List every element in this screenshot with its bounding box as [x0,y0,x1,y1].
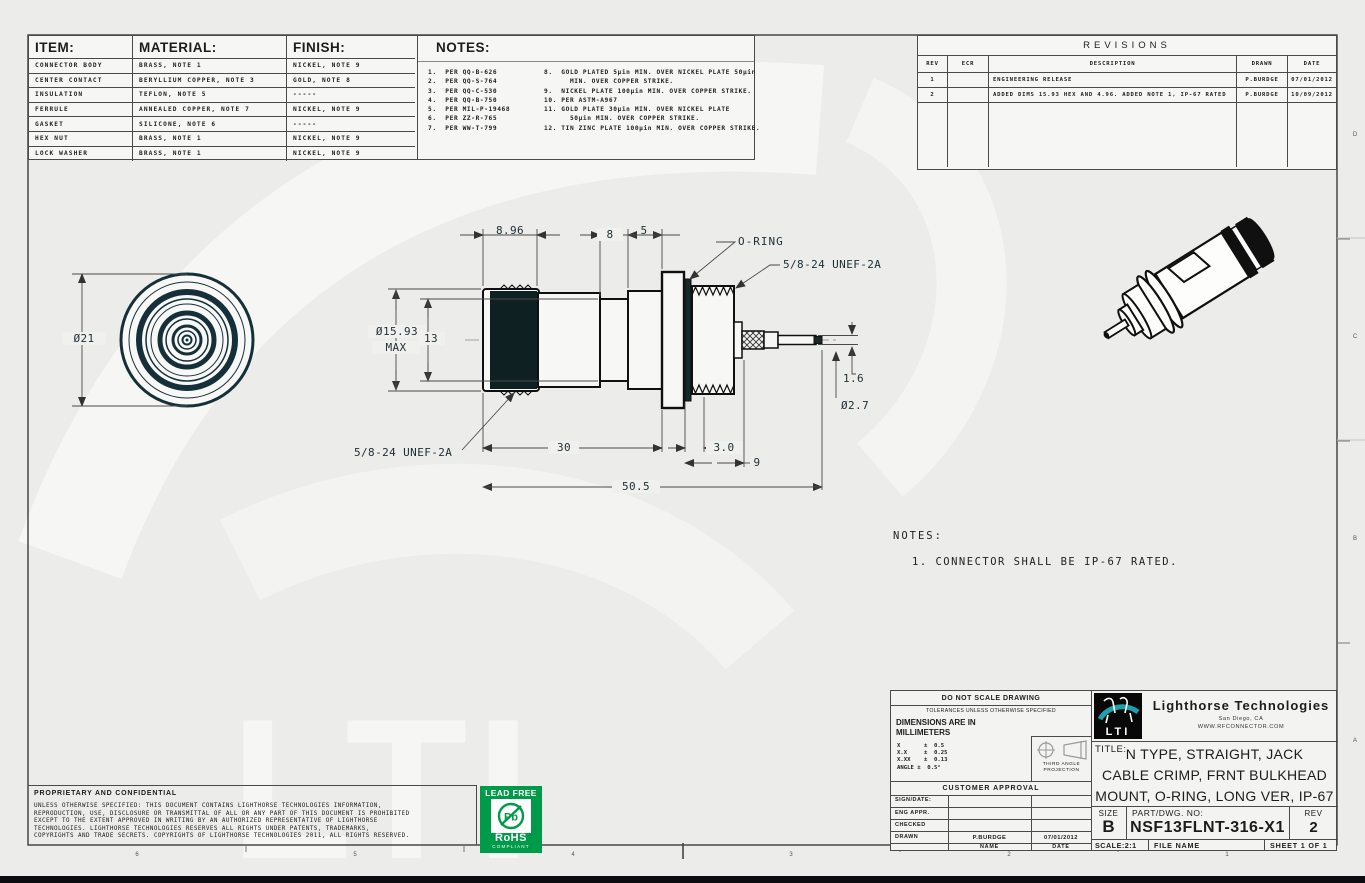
rohs-badge: LEAD FREE Pb RoHS COMPLIANT [480,786,542,853]
revision-cell: P.BURDGE [1237,73,1288,88]
materials-cell: FERRULE [29,103,133,118]
rohs-compliant-label: COMPLIANT [480,844,542,850]
revisions-header: DESCRIPTION [989,56,1237,73]
revision-cell: 07/01/2012 [1288,73,1336,88]
file-name-label: FILE NAME [1154,841,1200,850]
dim-diameter-max-suffix: MAX [372,341,420,354]
zone-number: 5 [345,852,365,858]
proprietary-body: UNLESS OTHERWISE SPECIFIED: THIS DOCUMEN… [34,803,410,841]
materials-cell: CENTER CONTACT [29,74,133,89]
name-column-label: NAME [948,843,1031,851]
materials-cell: GOLD, NOTE 8 [287,74,415,89]
top-notes-title: NOTES: [436,40,490,55]
top-notes-left-column: 1. PER QQ-B-626 2. PER QQ-S-764 3. PER Q… [428,68,510,133]
revisions-header: DATE [1288,56,1336,73]
drawing-title-line-3: MOUNT, O-RING, LONG VER, IP-67 [1091,786,1338,806]
do-not-scale-label: DO NOT SCALE DRAWING [891,691,1091,705]
dim-3-0: 3.0 [706,441,742,454]
materials-header-item: ITEM: [29,36,133,59]
revision-cell: ENGINEERING RELEASE [989,73,1237,88]
sheet-number-label: SHEET 1 OF 1 [1270,841,1328,850]
eng-appr-label: ENG APPR. [895,810,930,816]
materials-cell: ANNEALED COPPER, NOTE 7 [133,103,287,118]
zone-number: 6 [127,852,147,858]
revisions-filler [989,103,1237,167]
materials-header-finish: FINISH: [287,36,415,59]
materials-cell: CONNECTOR BODY [29,59,133,74]
materials-cell: BRASS, NOTE 1 [133,59,287,74]
label-o-ring: O-RING [738,235,784,248]
dim-8: 8 [597,228,623,241]
zone-letter: B [1348,536,1362,542]
drawing-title-line-1: N TYPE, STRAIGHT, JACK [1091,744,1338,764]
company-logo: LTI [1094,693,1142,739]
materials-header-material: MATERIAL: [133,36,287,59]
revisions-title: REVISIONS [918,36,1336,56]
dim-front-diameter: Ø21 [62,332,106,345]
company-website: WWW.RFCONNECTOR.COM [1146,723,1336,731]
drawing-sheet: LTI [0,0,1365,883]
dimensions-note: DIMENSIONS ARE IN MILLIMETERS [896,718,1031,738]
dim-1-6: 1.6 [843,372,864,385]
revisions-header: DRAWN [1237,56,1288,73]
zone-letter: A [1348,738,1362,744]
third-angle-cell: THIRD ANGLE PROJECTION [1032,737,1091,781]
main-notes-item-1: 1. CONNECTOR SHALL BE IP-67 RATED. [912,556,1178,568]
top-notes-divider [418,61,754,62]
tolerance-values: X ± 0.5 X.X ± 0.25 X.XX ± 0.13 ANGLE ± 0… [897,743,1027,772]
revision-cell: 2 [918,88,948,103]
company-location: San Diego, CA [1146,715,1336,723]
rev-value: 2 [1289,816,1338,838]
materials-cell: NICKEL, NOTE 9 [287,59,415,74]
zone-letter: C [1348,334,1362,340]
pb-icon: Pb [491,799,531,833]
materials-cell: HEX NUT [29,132,133,147]
top-notes-panel: NOTES: 1. PER QQ-B-626 2. PER QQ-S-764 3… [417,35,755,160]
materials-cell: ----- [287,88,415,103]
materials-cell: NICKEL, NOTE 9 [287,103,415,118]
sign-date-label: SIGN/DATE: [895,797,931,803]
dim-5: 5 [632,224,656,237]
zone-number: 2 [999,852,1019,858]
part-number-value: NSF13FLNT-316-X1 [1126,817,1289,838]
dim-50-5: 50.5 [612,480,660,493]
revisions-header: REV [918,56,948,73]
materials-cell: BRASS, NOTE 1 [133,147,287,162]
dim-diameter-2-7: Ø2.7 [841,399,869,412]
title-block: DO NOT SCALE DRAWING TOLERANCES UNLESS O… [890,690,1337,851]
dim-13: 13 [417,332,445,345]
dim-9: 9 [750,456,764,469]
revision-cell: 10/09/2012 [1288,88,1336,103]
materials-cell: NICKEL, NOTE 9 [287,132,415,147]
front-view [121,274,253,406]
revision-cell: P.BURDGE [1237,88,1288,103]
revisions-header: ECR [948,56,989,73]
materials-cell: LOCK WASHER [29,147,133,162]
materials-cell: INSULATION [29,88,133,103]
label-thread-top: 5/8-24 UNEF-2A [783,258,881,271]
zone-letter: D [1348,132,1362,138]
revisions-filler [918,103,948,167]
revision-cell [948,88,989,103]
materials-cell: BRASS, NOTE 1 [133,132,287,147]
revisions-filler [1237,103,1288,167]
third-angle-projection-icon [1034,740,1090,760]
label-thread-bottom: 5/8-24 UNEF-2A [354,446,452,459]
rohs-label: RoHS [480,833,542,844]
isometric-view [1087,208,1284,365]
materials-table: ITEM: MATERIAL: FINISH: CONNECTOR BODY B… [28,35,418,160]
main-notes-title: NOTES: [893,530,943,542]
revision-cell: 1 [918,73,948,88]
revisions-table: REVISIONS REV ECR DESCRIPTION DRAWN DATE… [917,35,1337,170]
dim-30: 30 [549,441,579,454]
zone-number: 1 [1217,852,1237,858]
materials-cell: TEFLON, NOTE 5 [133,88,287,103]
side-view [465,272,840,408]
zone-number: 4 [563,852,583,858]
tolerances-header: TOLERANCES UNLESS OTHERWISE SPECIFIED [891,706,1091,716]
revisions-filler [1288,103,1336,167]
materials-cell: NICKEL, NOTE 9 [287,147,415,162]
bottom-edge-strip [0,876,1365,883]
drawing-title-line-2: CABLE CRIMP, FRNT BULKHEAD [1091,765,1338,785]
revision-cell: ADDED DIMS 15.93 HEX AND 4.96. ADDED NOT… [989,88,1237,103]
drawn-name-value: P.BURDGE [948,832,1031,843]
third-angle-label: THIRD ANGLE PROJECTION [1032,762,1091,774]
scale-value: SCALE:2:1 [1095,841,1137,850]
revisions-filler [948,103,989,167]
proprietary-block: PROPRIETARY AND CONFIDENTIAL UNLESS OTHE… [28,785,477,845]
materials-cell: BERYLLIUM COPPER, NOTE 3 [133,74,287,89]
checked-label: CHECKED [895,822,926,828]
proprietary-title: PROPRIETARY AND CONFIDENTIAL [34,790,177,797]
zone-number: 3 [781,852,801,858]
revision-cell [948,73,989,88]
materials-cell: SILICONE, NOTE 6 [133,117,287,132]
size-value: B [1091,816,1126,838]
materials-cell: ----- [287,117,415,132]
lti-horse-icon: LTI [1094,693,1142,739]
company-name: Lighthorse Technologies [1146,697,1336,713]
customer-approval-label: CUSTOMER APPROVAL [891,782,1091,795]
svg-text:LTI: LTI [1106,726,1131,738]
date-column-label: DATE [1031,843,1091,851]
dim-8-96: 8.96 [484,224,536,237]
lead-free-label: LEAD FREE [480,786,542,798]
drawn-label: DRAWN [895,834,918,840]
drawn-date-value: 07/01/2012 [1031,832,1091,843]
materials-cell: GASKET [29,117,133,132]
top-notes-right-column: 8. GOLD PLATED 5µin MIN. OVER NICKEL PLA… [544,68,760,133]
